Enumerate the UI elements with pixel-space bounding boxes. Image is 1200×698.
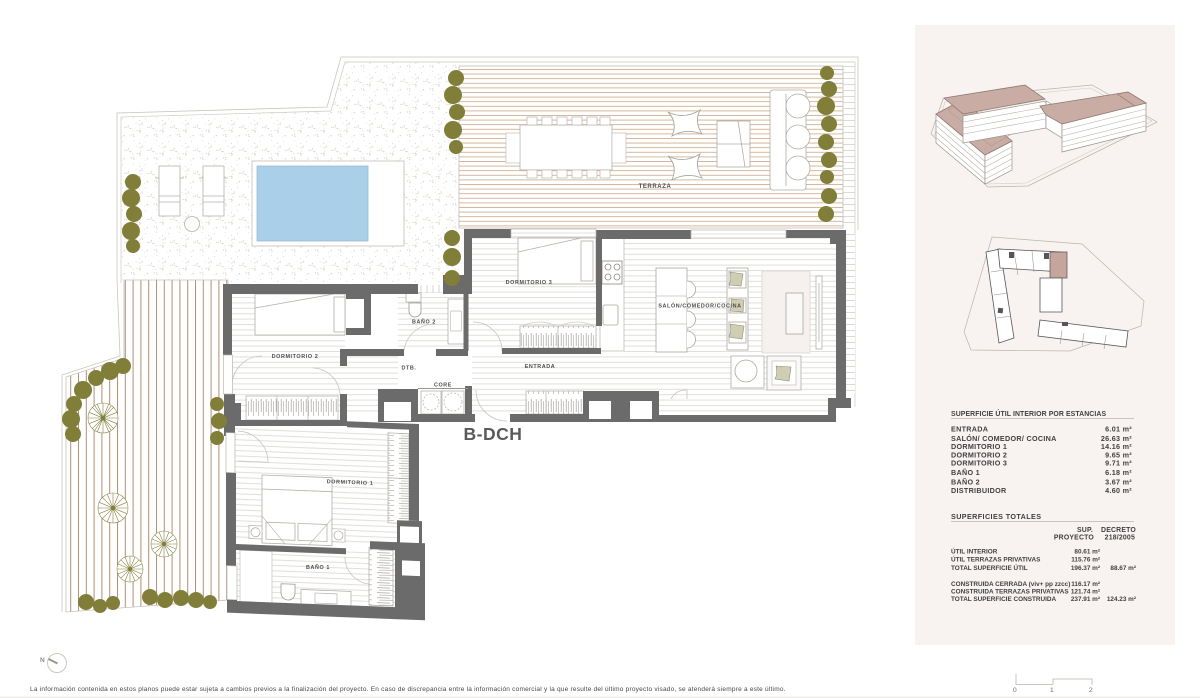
svg-text:CONSTRUIDA TERRAZAS PRIVATIVAS: CONSTRUIDA TERRAZAS PRIVATIVAS <box>951 589 1069 596</box>
svg-text:SUP.: SUP. <box>1077 527 1093 534</box>
svg-text:DTB.: DTB. <box>402 366 417 372</box>
svg-text:DORMITORIO 3: DORMITORIO 3 <box>506 280 553 286</box>
svg-text:ENTRADA: ENTRADA <box>525 364 556 370</box>
svg-text:6.01 m²: 6.01 m² <box>1105 425 1132 434</box>
svg-text:6.18 m²: 6.18 m² <box>1105 468 1132 477</box>
svg-text:2: 2 <box>1089 687 1093 694</box>
svg-text:SUPERFICIES TOTALES: SUPERFICIES TOTALES <box>951 512 1041 521</box>
svg-text:N: N <box>40 657 45 664</box>
svg-text:PROYECTO: PROYECTO <box>1054 535 1095 542</box>
svg-text:DECRETO: DECRETO <box>1101 527 1136 534</box>
svg-text:DORMITORIO 3: DORMITORIO 3 <box>951 459 1007 468</box>
svg-text:9.71 m²: 9.71 m² <box>1105 459 1132 468</box>
svg-text:BAÑO 1: BAÑO 1 <box>306 564 330 571</box>
svg-text:1: 1 <box>1050 687 1054 694</box>
svg-text:116.17 m²: 116.17 m² <box>1071 581 1100 588</box>
svg-text:124.23 m²: 124.23 m² <box>1107 596 1136 603</box>
svg-text:B-DCH: B-DCH <box>464 424 523 444</box>
svg-text:SALÓN/COMEDOR/COCINA: SALÓN/COMEDOR/COCINA <box>658 302 741 310</box>
svg-text:80.61 m²: 80.61 m² <box>1074 549 1100 556</box>
svg-text:ÚTIL TERRAZAS PRIVATIVAS: ÚTIL TERRAZAS PRIVATIVAS <box>951 555 1041 564</box>
svg-text:237.91 m²: 237.91 m² <box>1071 596 1100 603</box>
svg-text:TOTAL SUPERFICIE ÚTIL: TOTAL SUPERFICIE ÚTIL <box>951 563 1028 572</box>
svg-text:88.67 m²: 88.67 m² <box>1110 565 1136 572</box>
svg-text:La información contenida en es: La información contenida en estos planos… <box>30 686 786 693</box>
svg-text:4.60 m²: 4.60 m² <box>1105 486 1132 495</box>
svg-text:196.37 m²: 196.37 m² <box>1071 565 1100 572</box>
svg-text:ENTRADA: ENTRADA <box>951 425 988 434</box>
svg-text:TOTAL SUPERFICIE CONSTRUIDA: TOTAL SUPERFICIE CONSTRUIDA <box>951 596 1056 603</box>
svg-text:CONSTRUIDA CERRADA (viv+ pp zz: CONSTRUIDA CERRADA (viv+ pp zzcc) <box>951 581 1070 588</box>
svg-text:121.74 m²: 121.74 m² <box>1071 589 1100 596</box>
svg-text:CORE: CORE <box>434 383 452 389</box>
svg-text:SUPERFICIE ÚTIL INTERIOR POR E: SUPERFICIE ÚTIL INTERIOR POR ESTANCIAS <box>951 409 1106 418</box>
svg-text:ÚTIL INTERIOR: ÚTIL INTERIOR <box>951 547 998 556</box>
svg-text:115.76 m²: 115.76 m² <box>1071 557 1100 564</box>
svg-text:DISTRIBUIDOR: DISTRIBUIDOR <box>951 486 1007 495</box>
svg-text:218/2005: 218/2005 <box>1105 535 1135 542</box>
svg-text:DORMITORIO 2: DORMITORIO 2 <box>272 354 319 360</box>
svg-text:BAÑO 2: BAÑO 2 <box>412 319 436 326</box>
svg-text:TERRAZA: TERRAZA <box>639 184 672 190</box>
svg-text:0: 0 <box>1013 687 1017 694</box>
svg-text:BAÑO 1: BAÑO 1 <box>951 468 980 477</box>
